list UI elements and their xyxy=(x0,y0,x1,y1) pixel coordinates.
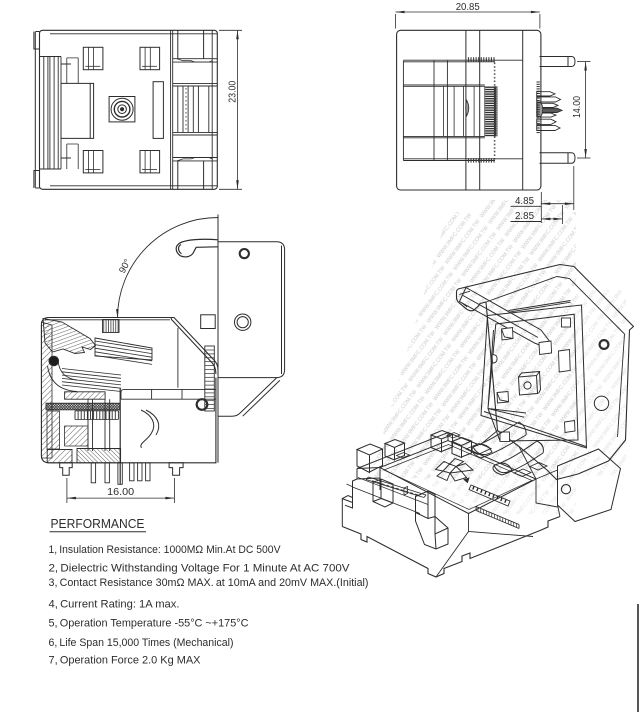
svg-text:4.85: 4.85 xyxy=(515,196,534,207)
svg-text:2, Dielectric Withstanding Vol: 2, Dielectric Withstanding Voltage For 1… xyxy=(49,562,351,574)
svg-text:2.85: 2.85 xyxy=(515,211,534,222)
svg-text:16.00: 16.00 xyxy=(107,487,134,498)
svg-text:23.00: 23.00 xyxy=(228,80,239,102)
svg-text:5, Operation Temperature -55°C: 5, Operation Temperature -55°C ~+175°C xyxy=(49,617,249,629)
svg-text:4, Current Rating: 1A max.: 4, Current Rating: 1A max. xyxy=(49,598,180,610)
svg-text:20.85: 20.85 xyxy=(456,2,480,13)
svg-text:3, Contact Resistance 30mΩ MAX: 3, Contact Resistance 30mΩ MAX. at 10mA … xyxy=(49,577,369,589)
svg-text:6, Life Span 15,000 Times (Mec: 6, Life Span 15,000 Times (Mechanical) xyxy=(49,637,234,649)
svg-text:PERFORMANCE: PERFORMANCE xyxy=(51,516,145,531)
svg-text:1, Insulation Resistance: 1000: 1, Insulation Resistance: 1000MΩ Min.At … xyxy=(49,544,281,556)
svg-text:14.00: 14.00 xyxy=(572,96,583,118)
svg-text:7, Operation Force 2.0 Kg MAX: 7, Operation Force 2.0 Kg MAX xyxy=(49,655,202,667)
